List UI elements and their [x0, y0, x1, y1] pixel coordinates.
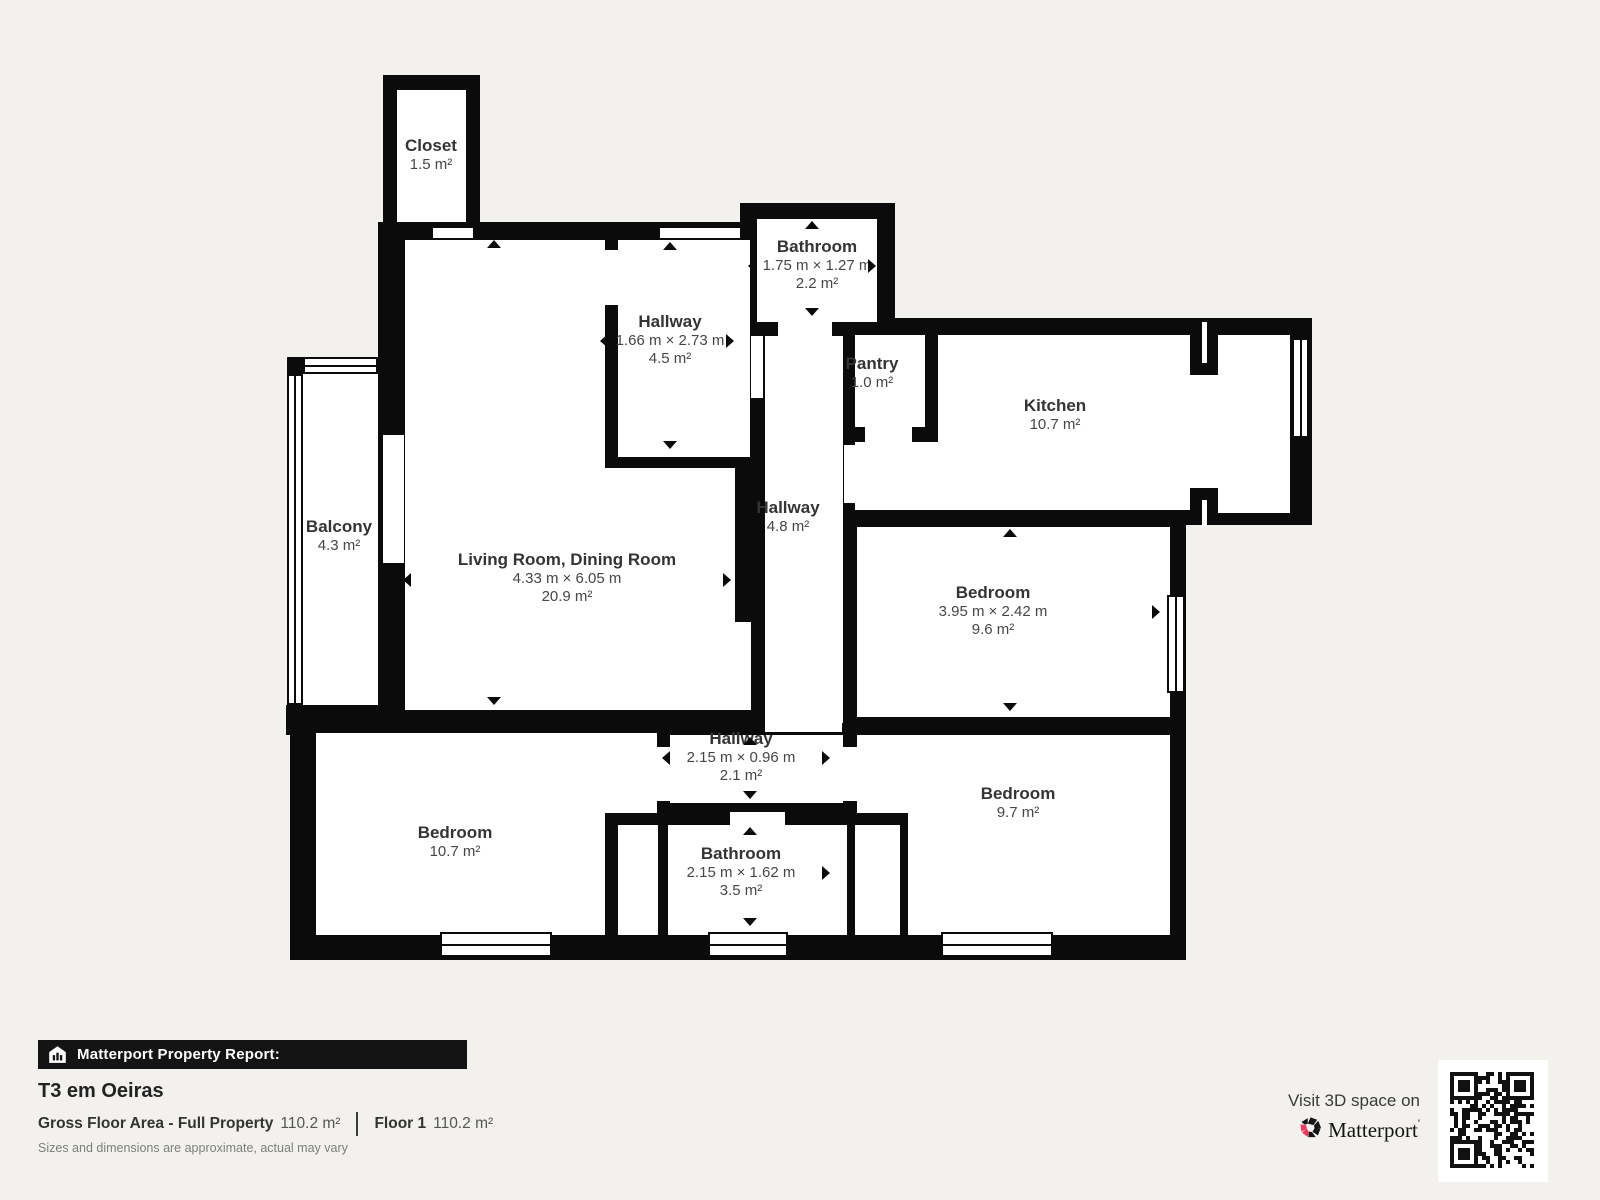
arrow-down-icon — [743, 918, 757, 926]
room-dims: 4.33 m × 6.05 m — [458, 570, 676, 588]
arrow-right-icon — [822, 751, 830, 765]
room-dims: 1.66 m × 2.73 m — [616, 332, 725, 350]
room-area: 1.5 m² — [405, 156, 457, 174]
room-closet-strip-right — [855, 825, 900, 935]
room-name: Bathroom — [763, 237, 872, 257]
disclaimer-text: Sizes and dimensions are approximate, ac… — [38, 1141, 348, 1155]
trademark-icon: ' — [1418, 1118, 1420, 1130]
gfa-label: Gross Floor Area - Full Property — [38, 1115, 273, 1133]
arrow-up-icon — [743, 737, 757, 745]
arrow-left-icon — [600, 334, 608, 348]
arrow-right-icon — [822, 866, 830, 880]
label-bedroom-bl: Bedroom 10.7 m² — [418, 823, 493, 861]
door-hallbot-bedroom-right — [843, 747, 857, 801]
room-area: 4.3 m² — [306, 537, 372, 555]
room-dims: 1.75 m × 1.27 m — [763, 257, 872, 275]
room-kitchen-nook — [1190, 375, 1218, 488]
room-area: 1.0 m² — [846, 374, 899, 392]
room-area: 10.7 m² — [1024, 416, 1086, 434]
label-bathroom-top: Bathroom 1.75 m × 1.27 m 2.2 m² — [763, 237, 872, 293]
room-dims: 2.15 m × 1.62 m — [687, 864, 796, 882]
door-living-hallmid — [735, 622, 751, 710]
door-pantry — [865, 427, 912, 443]
window-bedroom-mid — [1167, 595, 1185, 693]
wall-balcony-bottom — [286, 705, 383, 735]
label-pantry: Pantry 1.0 m² — [846, 354, 899, 392]
door-bathroom-top — [778, 321, 832, 337]
divider — [356, 1112, 358, 1136]
arrow-left-icon — [847, 605, 855, 619]
room-name: Bedroom — [981, 784, 1056, 804]
label-bathroom-bottom: Bathroom 2.15 m × 1.62 m 3.5 m² — [687, 844, 796, 900]
arrow-left-icon — [748, 259, 756, 273]
label-living-room: Living Room, Dining Room 4.33 m × 6.05 m… — [458, 550, 676, 606]
label-bedroom-br: Bedroom 9.7 m² — [981, 784, 1056, 822]
room-area: 2.2 m² — [763, 275, 872, 293]
arrow-left-icon — [662, 751, 670, 765]
room-name: Living Room, Dining Room — [458, 550, 676, 570]
gfa-value: 110.2 m² — [280, 1115, 340, 1133]
door-halltop-hallmid — [751, 336, 763, 398]
room-name: Closet — [405, 136, 457, 156]
label-balcony: Balcony 4.3 m² — [306, 517, 372, 555]
arrow-right-icon — [726, 334, 734, 348]
arrow-down-icon — [1003, 703, 1017, 711]
arrow-down-icon — [743, 791, 757, 799]
door-balcony — [383, 435, 404, 563]
matterport-floor-plan-report: Closet 1.5 m² Bathroom 1.75 m × 1.27 m 2… — [0, 0, 1600, 1200]
floor-label: Floor 1 — [374, 1115, 426, 1133]
room-name: Pantry — [846, 354, 899, 374]
label-hallway-bottom: Hallway 2.15 m × 0.96 m 2.1 m² — [687, 729, 796, 785]
room-kitchen-right — [1218, 335, 1290, 513]
room-name: Balcony — [306, 517, 372, 537]
room-name: Hallway — [687, 729, 796, 749]
window-kitchen-right — [1292, 338, 1309, 438]
room-area: 2.1 m² — [687, 767, 796, 785]
room-bedroom-br — [908, 813, 1170, 935]
qr-code — [1438, 1060, 1548, 1182]
door-slit-kitchen-top — [1202, 322, 1207, 363]
arrow-up-icon — [743, 827, 757, 835]
report-header-bar: Matterport Property Report: — [38, 1040, 467, 1069]
room-dims: 3.95 m × 2.42 m — [939, 603, 1048, 621]
room-area: 9.7 m² — [981, 804, 1056, 822]
area-info-row: Gross Floor Area - Full Property 110.2 m… — [38, 1112, 493, 1136]
room-dims: 2.15 m × 0.96 m — [687, 749, 796, 767]
report-bar-label: Matterport Property Report: — [77, 1046, 280, 1063]
room-area: 20.9 m² — [458, 588, 676, 606]
door-entry-top — [660, 228, 740, 238]
arrow-right-icon — [723, 573, 731, 587]
label-kitchen: Kitchen 10.7 m² — [1024, 396, 1086, 434]
room-closet-strip-left — [618, 825, 658, 935]
room-kitchen-left — [855, 442, 938, 510]
window-bedroom-br — [941, 932, 1053, 957]
room-name: Bathroom — [687, 844, 796, 864]
arrow-down-icon — [805, 308, 819, 316]
label-hallway-top: Hallway 1.66 m × 2.73 m 4.5 m² — [616, 312, 725, 368]
property-title: T3 em Oeiras — [38, 1080, 164, 1103]
room-area: 4.5 m² — [616, 350, 725, 368]
arrow-up-icon — [805, 221, 819, 229]
label-hallway-mid: Hallway 4.8 m² — [756, 498, 819, 536]
arrow-right-icon — [1152, 605, 1160, 619]
window-balcony-left — [287, 374, 303, 705]
room-name: Hallway — [756, 498, 819, 518]
arrow-up-icon — [1003, 529, 1017, 537]
matterport-wordmark: Matterport — [1328, 1118, 1418, 1143]
floor-value: 110.2 m² — [433, 1115, 493, 1133]
arrow-down-icon — [487, 697, 501, 705]
wall-balcony-top-cap — [287, 357, 303, 374]
room-name: Kitchen — [1024, 396, 1086, 416]
door-living-hallway — [605, 250, 618, 305]
matterport-house-icon — [48, 1045, 67, 1064]
arrow-right-icon — [868, 259, 876, 273]
arrow-left-icon — [660, 866, 668, 880]
room-area: 10.7 m² — [418, 843, 493, 861]
label-bedroom-mid: Bedroom 3.95 m × 2.42 m 9.6 m² — [939, 583, 1048, 639]
arrow-up-icon — [663, 242, 677, 250]
door-hallbot-bathroom — [730, 812, 785, 826]
room-name: Hallway — [616, 312, 725, 332]
room-area: 3.5 m² — [687, 882, 796, 900]
room-area: 4.8 m² — [756, 518, 819, 536]
room-area: 9.6 m² — [939, 621, 1048, 639]
visit-3d-text: Visit 3D space on — [1278, 1091, 1420, 1111]
window-bathroom-bottom — [708, 932, 788, 957]
door-hallmid-kitchen — [844, 445, 856, 503]
arrow-up-icon — [487, 240, 501, 248]
window-balcony-top — [303, 357, 378, 374]
matterport-brand: Matterport ' — [1278, 1115, 1420, 1145]
room-name: Bedroom — [418, 823, 493, 843]
label-closet: Closet 1.5 m² — [405, 136, 457, 174]
arrow-left-icon — [403, 573, 411, 587]
room-name: Bedroom — [939, 583, 1048, 603]
door-closet — [433, 228, 473, 238]
matterport-logo-icon — [1298, 1115, 1323, 1145]
door-slit-kitchen-bottom — [1202, 500, 1207, 526]
arrow-down-icon — [663, 441, 677, 449]
window-bedroom-bl — [440, 932, 552, 957]
